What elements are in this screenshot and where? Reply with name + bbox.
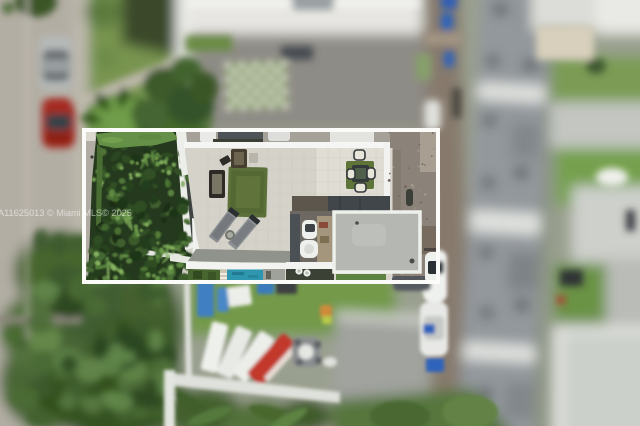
svg-text:A11625013 © Miami MLS© 2025: A11625013 © Miami MLS© 2025 — [0, 208, 132, 218]
